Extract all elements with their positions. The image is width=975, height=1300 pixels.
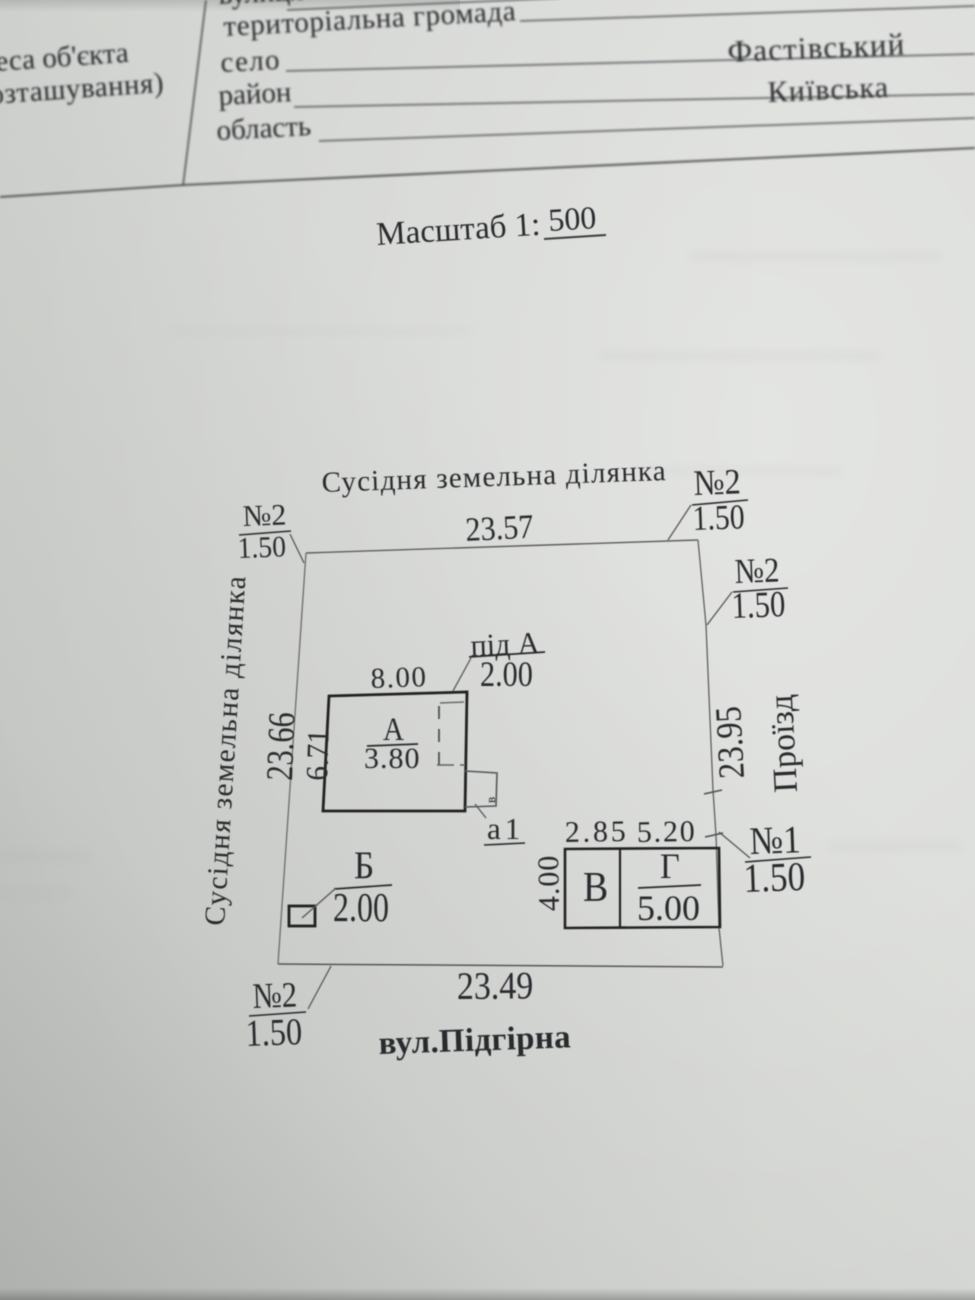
svg-text:1.50: 1.50 [743, 854, 806, 901]
svg-text:№2: №2 [242, 498, 287, 533]
svg-text:№2: №2 [693, 462, 741, 504]
svg-text:район: район [218, 76, 292, 112]
svg-text:1.50: 1.50 [237, 530, 286, 565]
svg-text:2.00: 2.00 [480, 655, 533, 695]
svg-text:5.00: 5.00 [637, 888, 700, 928]
svg-text:6.71: 6.71 [299, 729, 336, 782]
svg-text:Київська: Київська [767, 71, 890, 109]
svg-text:Г: Г [660, 846, 680, 886]
svg-text:500: 500 [547, 199, 597, 238]
svg-text:23.49: 23.49 [457, 963, 534, 1007]
svg-text:2.85: 2.85 [565, 815, 629, 849]
svg-text:5.20: 5.20 [637, 815, 697, 849]
svg-text:вул.Підгірна: вул.Підгірна [378, 1019, 571, 1062]
svg-text:1.50: 1.50 [245, 1011, 303, 1055]
svg-text:3.80: 3.80 [364, 742, 421, 775]
svg-text:4.00: 4.00 [532, 854, 566, 911]
svg-text:23.57: 23.57 [464, 507, 534, 549]
svg-text:а1: а1 [487, 811, 524, 846]
svg-text:1.50: 1.50 [731, 585, 786, 627]
svg-text:Проїзд: Проїзд [763, 694, 805, 794]
svg-text:8.00: 8.00 [370, 661, 428, 695]
svg-text:село: село [220, 44, 282, 79]
svg-text:В: В [583, 863, 608, 910]
svg-text:2.00: 2.00 [333, 884, 389, 930]
svg-text:23.95: 23.95 [708, 705, 752, 779]
svg-text:Б: Б [354, 844, 374, 887]
svg-text:23.66: 23.66 [259, 711, 303, 781]
svg-text:в: в [483, 797, 498, 803]
svg-text:область: область [216, 110, 312, 147]
svg-text:1.50: 1.50 [692, 498, 745, 539]
